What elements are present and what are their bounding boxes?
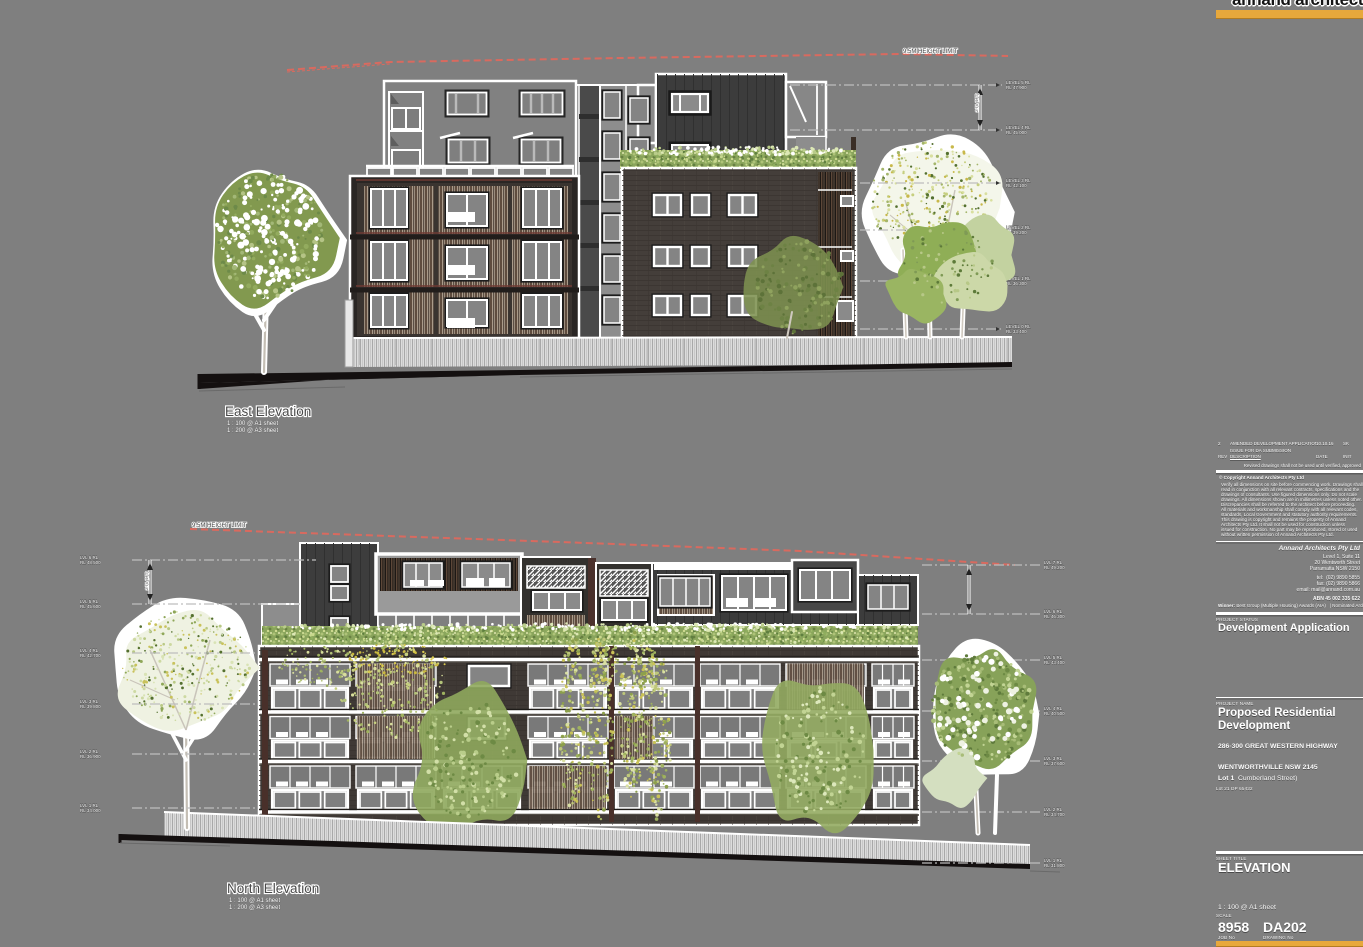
svg-text:RL 37.600: RL 37.600 (1044, 761, 1065, 766)
svg-text:RL 42.700: RL 42.700 (80, 653, 101, 658)
svg-text:1 : 100 @ A1 sheet: 1 : 100 @ A1 sheet (229, 898, 280, 904)
svg-text:RL 48.500: RL 48.500 (80, 560, 101, 565)
svg-text:RL 34.000: RL 34.000 (80, 808, 101, 813)
svg-text:RL 47.900: RL 47.900 (1006, 85, 1027, 90)
svg-text:2.74 (9FT): 2.74 (9FT) (974, 93, 979, 112)
svg-text:East Elevation: East Elevation (225, 404, 311, 419)
svg-text:1 : 200 @ A3 sheet: 1 : 200 @ A3 sheet (227, 428, 278, 434)
svg-text:RL 31.800: RL 31.800 (1044, 863, 1065, 868)
svg-text:2.74 (9FT): 2.74 (9FT) (144, 571, 149, 590)
svg-text:RL 42.100: RL 42.100 (1006, 183, 1027, 188)
svg-text:RL 45.000: RL 45.000 (1006, 130, 1027, 135)
svg-text:RL 36.900: RL 36.900 (80, 754, 101, 759)
svg-text:RL 49.200: RL 49.200 (1044, 565, 1065, 570)
svg-text:1 : 200 @ A3 sheet: 1 : 200 @ A3 sheet (229, 905, 280, 911)
svg-text:RL 40.500: RL 40.500 (1044, 711, 1065, 716)
svg-text:RL 39.800: RL 39.800 (80, 704, 101, 709)
svg-text:RL 43.400: RL 43.400 (1044, 660, 1065, 665)
svg-text:RL 45.600: RL 45.600 (80, 604, 101, 609)
svg-text:North Elevation: North Elevation (227, 881, 319, 896)
svg-text:RL 34.700: RL 34.700 (1044, 812, 1065, 817)
svg-text:1 : 100 @ A1 sheet: 1 : 100 @ A1 sheet (227, 421, 278, 427)
svg-text:RL 36.300: RL 36.300 (1006, 281, 1027, 286)
svg-text:9.5M HEIGHT LIMIT: 9.5M HEIGHT LIMIT (192, 523, 247, 529)
svg-text:9.5M HEIGHT LIMIT: 9.5M HEIGHT LIMIT (903, 49, 958, 55)
svg-text:RL 33.400: RL 33.400 (1006, 329, 1027, 334)
svg-text:RL 46.300: RL 46.300 (1044, 614, 1065, 619)
